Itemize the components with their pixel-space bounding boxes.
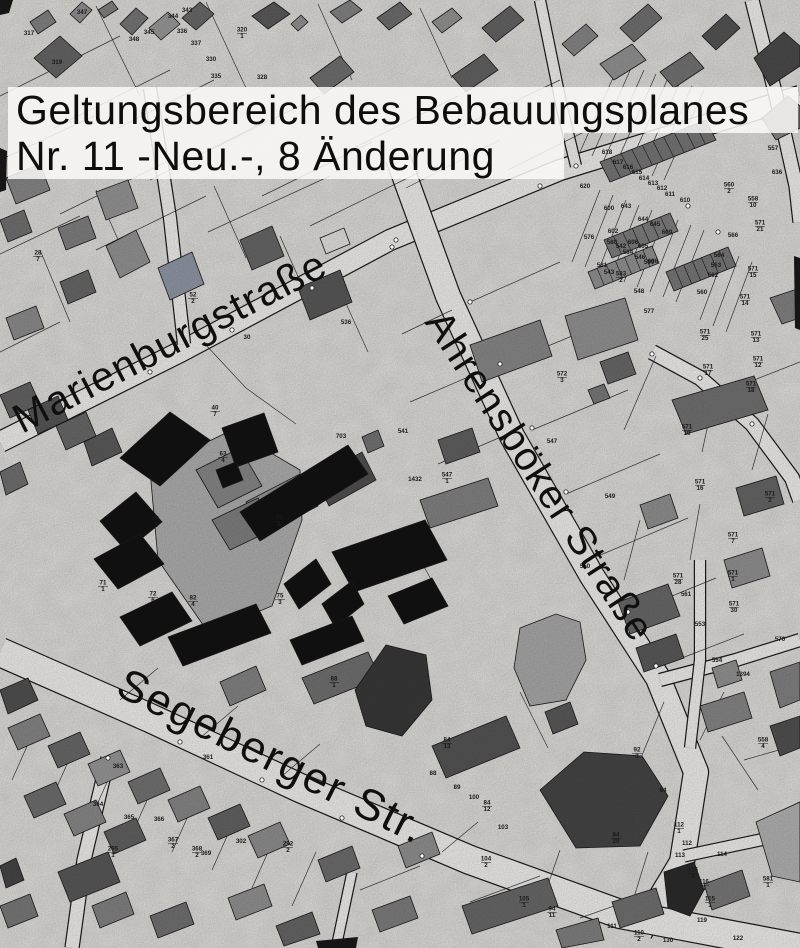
parcel-number: 605 [638, 243, 649, 250]
parcel-number: 130 [663, 937, 674, 944]
parcel-number: 554 [712, 657, 723, 664]
parcel-number: 111 [607, 923, 617, 930]
parcel-number: 543 [604, 269, 615, 276]
parcel-number: 302 [236, 838, 247, 845]
parcel-number: 344 [168, 13, 179, 20]
parcel-number: 561 [681, 591, 692, 598]
boundary-point-dot [178, 740, 182, 744]
scan-edge-artifact [794, 256, 800, 330]
parcel-number: 114 [717, 851, 728, 858]
parcel-number: 600 [604, 205, 615, 212]
boundary-point-dot [698, 376, 702, 380]
boundary-point-dot [538, 184, 542, 188]
boundary-point-dot [390, 245, 394, 249]
parcel-number: 366 [154, 816, 165, 823]
parcel-number: 581 [597, 262, 608, 269]
parcel-number: 611 [665, 191, 676, 198]
parcel-number: 645 [650, 221, 661, 228]
cadastral-map-canvas: 3473443433453483363373303353201328319317… [0, 0, 800, 948]
parcel-number: 541 [398, 428, 409, 435]
boundary-point-dot [420, 854, 424, 858]
parcel-number: 363 [113, 763, 124, 770]
map-title-line2: Nr. 11 -Neu.-, 8 Änderung [16, 133, 495, 179]
parcel-number: 576 [584, 234, 595, 241]
boundary-point-dot [468, 300, 472, 304]
parcel-number: 618 [602, 149, 613, 156]
boundary-point-dot [498, 362, 502, 366]
parcel-number: 570 [775, 636, 786, 643]
parcel-number: 536 [341, 319, 352, 326]
parcel-number: 553 [695, 621, 706, 628]
boundary-point-dot [574, 164, 578, 168]
parcel-number: 365 [124, 814, 135, 821]
parcel-number: 88 [430, 770, 437, 777]
parcel-number: 547 [547, 438, 558, 445]
parcel-number: 577 [644, 308, 655, 315]
parcel-number: 644 [638, 216, 649, 223]
parcel-number: 100 [469, 794, 480, 801]
parcel-number: 330 [206, 56, 217, 63]
boundary-point-dot [654, 664, 658, 668]
parcel-number: 345 [144, 29, 155, 36]
parcel-number: 361 [203, 754, 214, 761]
parcel-number: 602 [608, 228, 619, 235]
parcel-number: 103 [498, 824, 509, 831]
parcel-number: 317 [24, 30, 35, 37]
parcel-number: 337 [191, 40, 202, 47]
scan-edge-artifact [0, 148, 7, 192]
parcel-number: 548 [634, 288, 645, 295]
boundary-point-dot [394, 238, 398, 242]
parcel-number: 113 [675, 852, 686, 859]
parcel-number: 30 [244, 334, 251, 341]
parcel-number: 584 [623, 249, 634, 256]
parcel-number: 364 [93, 801, 104, 808]
parcel-number: 557 [768, 145, 779, 152]
parcel-number: 112 [682, 840, 693, 847]
parcel-number: 348 [129, 36, 140, 43]
parcel-number: 122 [733, 935, 744, 942]
parcel-number: 369 [201, 850, 212, 857]
parcel-number: 119 [697, 917, 708, 924]
parcel-number: 636 [772, 169, 783, 176]
map-title-line1: Geltungsbereich des Bebauungsplanes [16, 87, 749, 133]
parcel-number: 609 [662, 229, 673, 236]
boundary-point-dot [716, 230, 720, 234]
parcel-number: 564 [714, 252, 725, 259]
parcel-number: 643 [621, 203, 632, 210]
parcel-number: 335 [211, 73, 222, 80]
boundary-point-dot [750, 422, 754, 426]
parcel-number: 343 [182, 7, 193, 14]
boundary-point-dot [106, 756, 110, 760]
parcel-number: 610 [680, 197, 691, 204]
parcel-number: 1394 [736, 671, 750, 678]
parcel-number: 347 [77, 9, 88, 16]
boundary-point-dot [650, 352, 654, 356]
parcel-number: 569 [644, 259, 655, 266]
parcel-number: 562 [708, 272, 719, 279]
parcel-number: 84 [660, 787, 667, 794]
parcel-number: 336 [177, 28, 188, 35]
parcel-number: 1432 [408, 476, 422, 483]
parcel-number: 703 [336, 433, 347, 440]
boundary-point-dot [686, 204, 690, 208]
parcel-number: 319 [52, 59, 63, 66]
parcel-number: 549 [605, 493, 616, 500]
parcel-number: 560 [697, 289, 708, 296]
parcel-number: 89 [454, 784, 461, 791]
parcel-number: 328 [257, 74, 268, 81]
parcel-number: 566 [728, 232, 739, 239]
parcel-number: 563 [711, 262, 722, 269]
parcel-number: 620 [580, 183, 591, 190]
scanned-map-page: 3473443433453483363373303353201328319317… [0, 0, 800, 948]
